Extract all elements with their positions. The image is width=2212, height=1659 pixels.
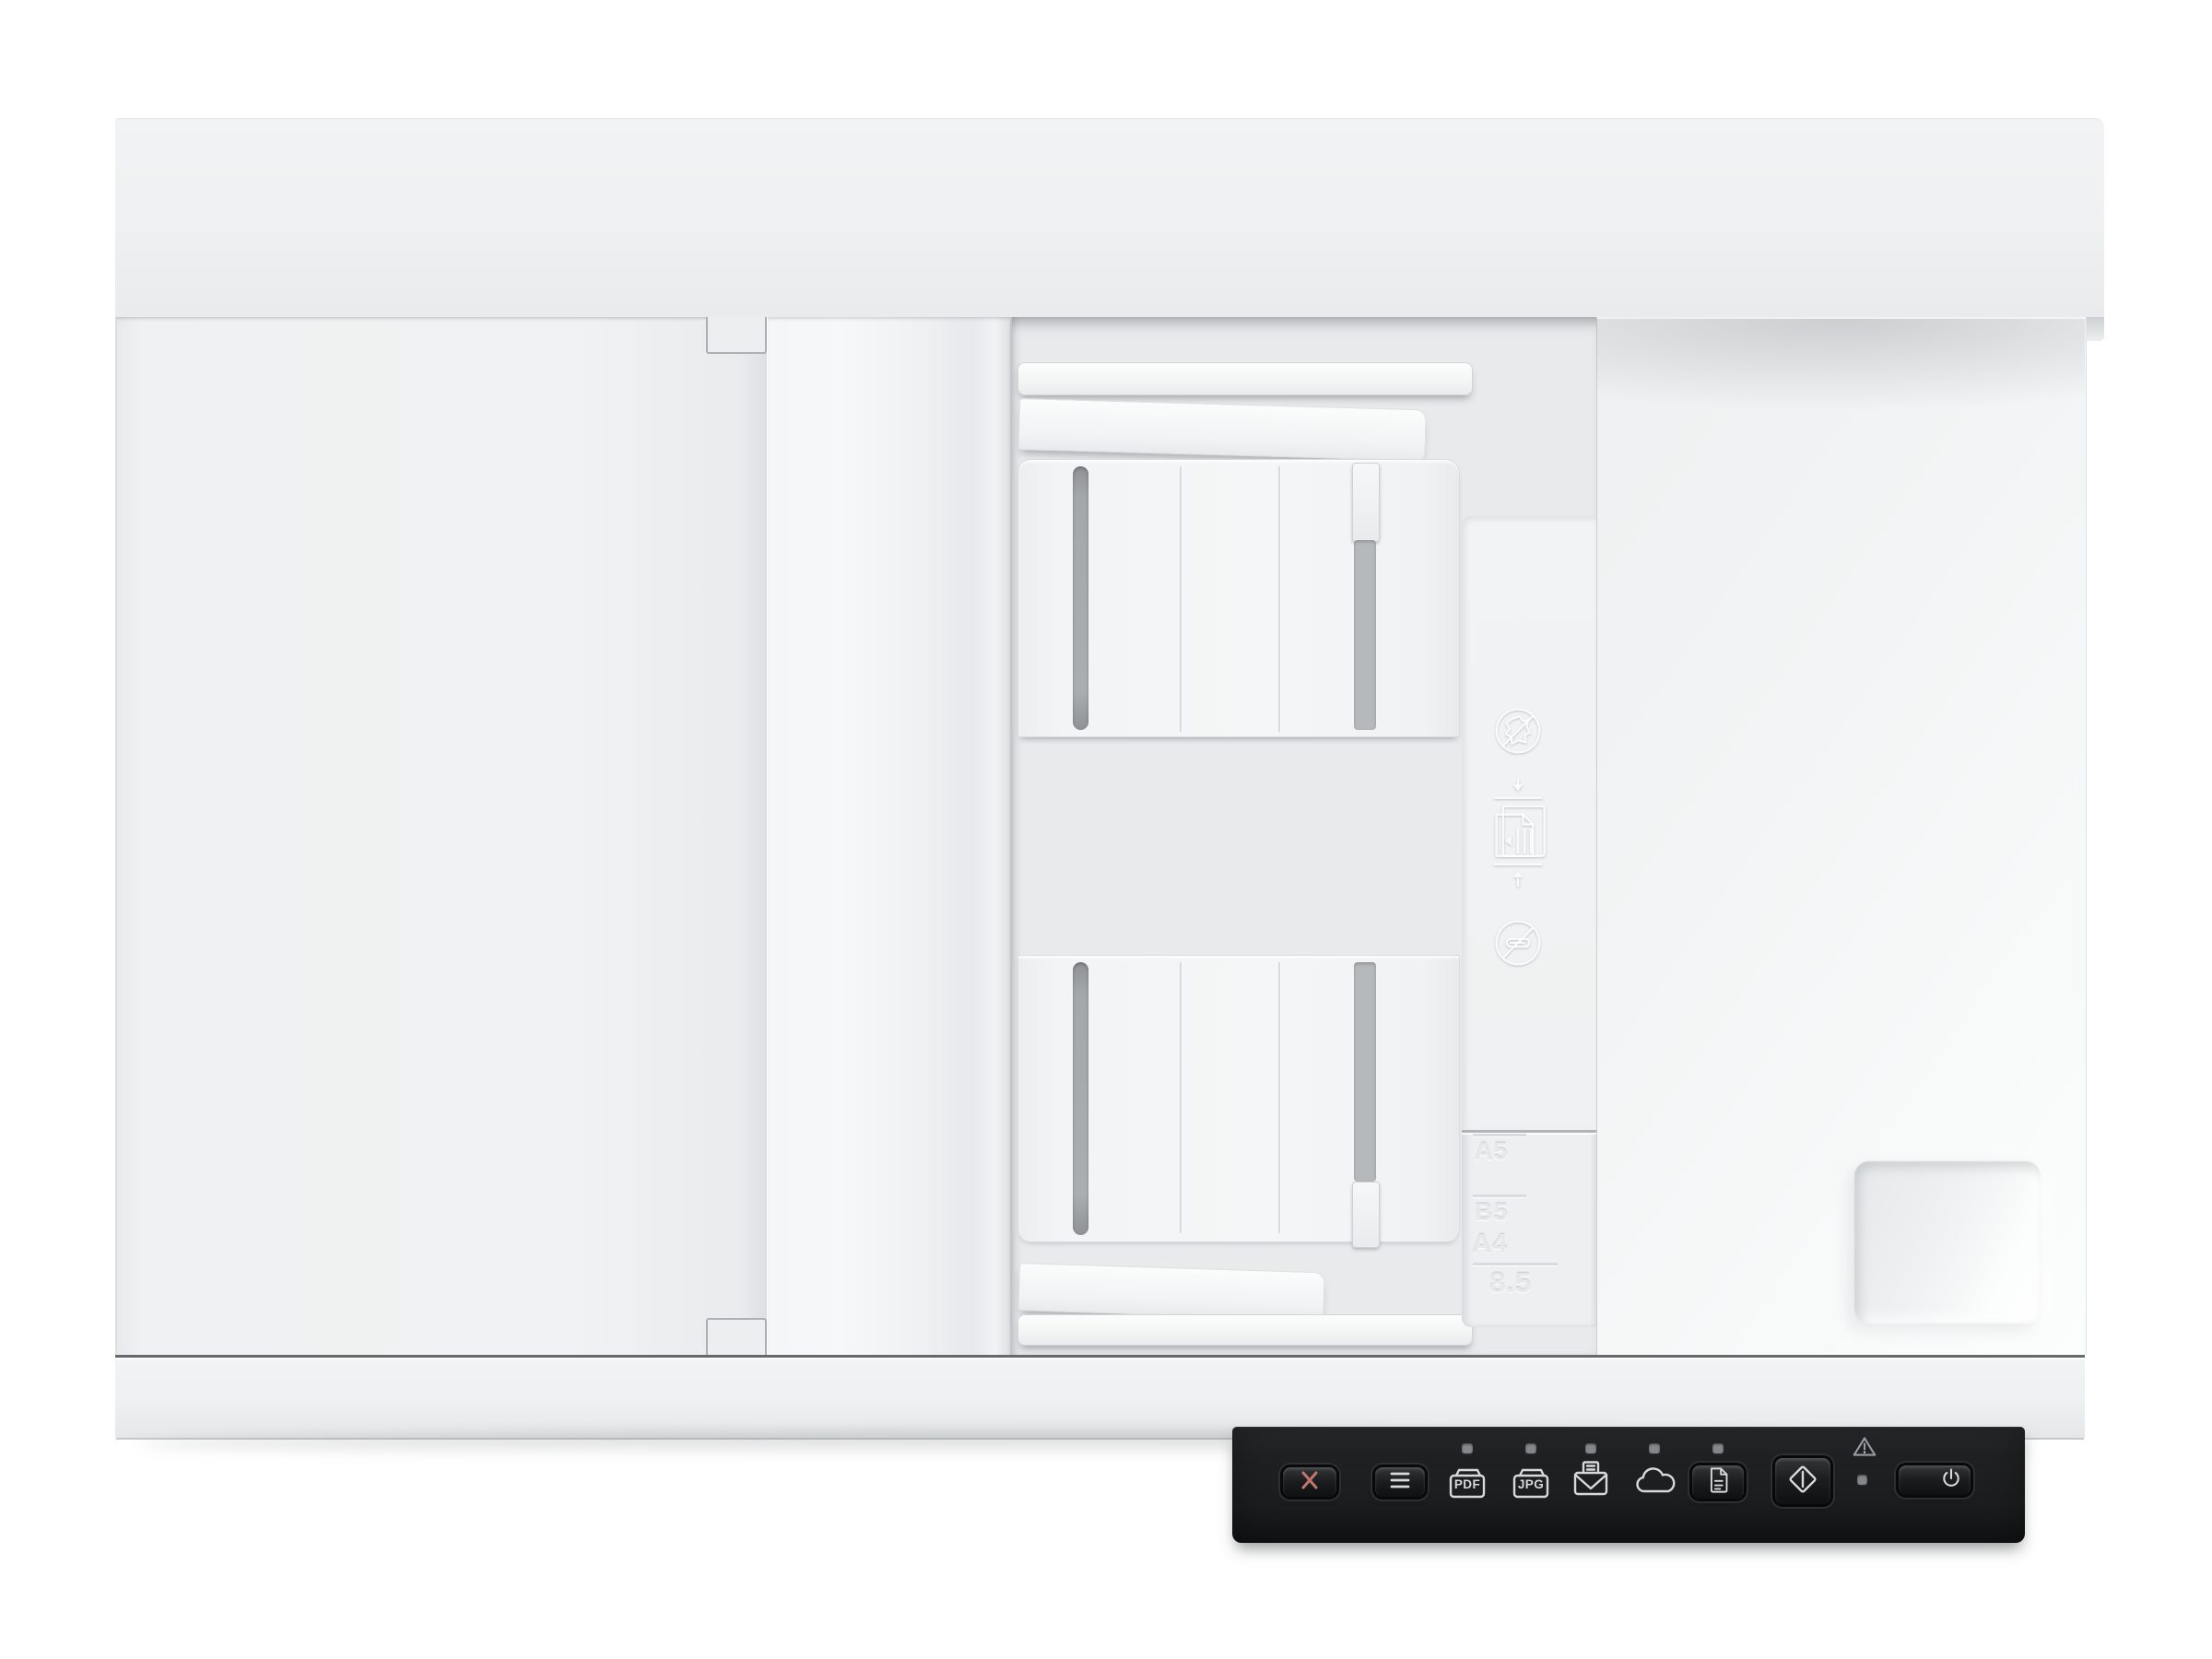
pdf-label: PDF [1447, 1477, 1488, 1491]
scan-to-document-button[interactable] [1692, 1465, 1744, 1499]
warning-triangle-icon [1853, 1445, 1877, 1461]
plate-seam [1180, 962, 1182, 1233]
load-original-stack-icon [1477, 772, 1559, 901]
plate-seam [1278, 962, 1280, 1233]
menu-lines-icon [1388, 1470, 1412, 1495]
status-led-email [1585, 1443, 1596, 1453]
scale-tick [1473, 1263, 1558, 1265]
hinge-notch-bottom [706, 1318, 767, 1357]
scale-tick [1473, 1134, 1526, 1136]
start-scan-diamond-icon [1785, 1462, 1820, 1501]
scale-tick [1473, 1194, 1526, 1197]
hinge-notch-top [706, 317, 767, 354]
jpg-label: JPG [1511, 1477, 1551, 1491]
no-paperclips-icon [1492, 917, 1544, 969]
status-led-document [1712, 1443, 1724, 1453]
embossed-grip-pad [1854, 1161, 2041, 1324]
paper-size-label-a5: A5 [1475, 1137, 1509, 1166]
power-button[interactable] [1899, 1465, 1971, 1495]
scanner-front-edge [115, 1355, 2085, 1438]
flatbed-lid[interactable] [115, 317, 768, 1355]
guide-track-upper [1354, 540, 1376, 730]
scan-to-cloud-indicator [1633, 1469, 1677, 1497]
scanner-product-photo: A5 B5 A4 8.5 [0, 0, 2212, 1659]
cancel-button[interactable] [1283, 1467, 1336, 1497]
under-band-shadow [1596, 319, 2085, 420]
scan-to-pdf-indicator: PDF [1447, 1465, 1488, 1500]
plate-seam [1278, 466, 1280, 732]
input-tray-edge-lower[interactable] [1018, 1314, 1473, 1346]
paper-size-label-b5: B5 [1475, 1198, 1509, 1227]
x-cancel-icon [1299, 1469, 1321, 1496]
scan-to-email-indicator [1571, 1462, 1611, 1500]
guide-slot-lower [1073, 962, 1088, 1235]
no-crumpled-paper-icon [1492, 705, 1544, 757]
paper-stop-flap-lower[interactable] [1018, 1263, 1324, 1320]
scan-to-email-icon [1571, 1460, 1611, 1503]
paper-size-label-85: 8.5 [1489, 1266, 1532, 1300]
guide-knob-lower[interactable] [1352, 1182, 1380, 1248]
power-icon [1940, 1467, 1962, 1494]
folder-jpg-icon: JPG [1511, 1465, 1551, 1500]
document-page-icon [1706, 1466, 1730, 1499]
folder-pdf-icon: PDF [1447, 1465, 1488, 1500]
guide-knob-upper[interactable] [1352, 463, 1380, 542]
scanner-back-panel [115, 118, 2104, 318]
scan-to-jpg-indicator: JPG [1511, 1465, 1551, 1500]
start-scan-button[interactable] [1775, 1458, 1830, 1504]
menu-button[interactable] [1375, 1467, 1425, 1497]
adf-hinge-column [767, 317, 1010, 1355]
warning-indicator [1853, 1436, 1877, 1462]
cloud-icon [1633, 1467, 1677, 1500]
plate-seam [1180, 466, 1182, 732]
guide-track-lower [1354, 962, 1376, 1182]
input-tray-edge-upper[interactable] [1018, 362, 1473, 395]
status-led-cloud [1649, 1443, 1660, 1453]
paper-size-label-a4: A4 [1472, 1230, 1508, 1260]
warning-led [1857, 1475, 1867, 1485]
guide-slot-upper [1073, 466, 1088, 730]
status-led-jpg [1525, 1443, 1536, 1453]
status-led-pdf [1462, 1443, 1473, 1453]
